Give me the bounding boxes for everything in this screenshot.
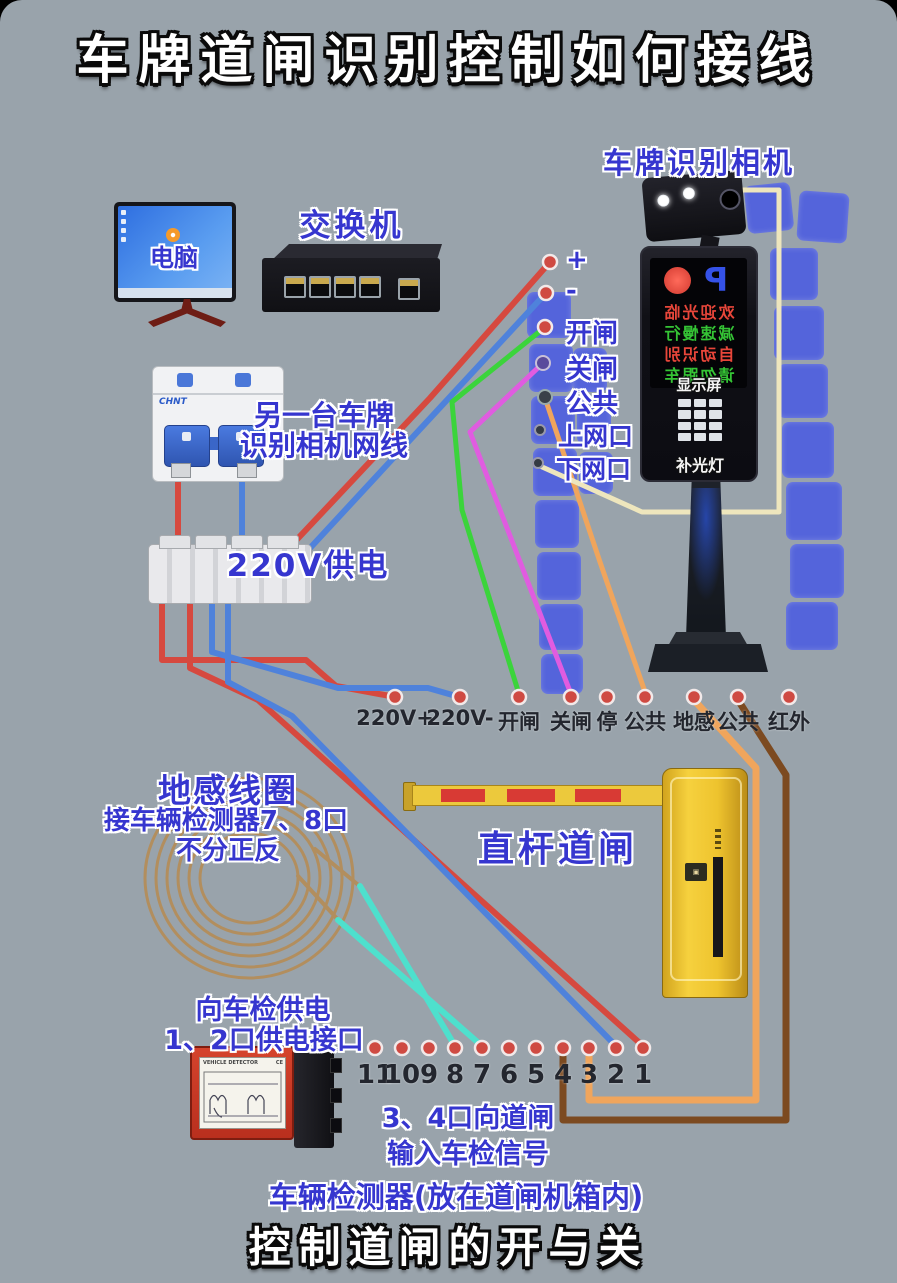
power-label: 220V供电 [227,540,390,585]
arm-red-segment [441,789,485,802]
terminal-dot-open [538,320,552,334]
gate-terminal-label: 红外 [768,706,810,736]
arm-red-segment [507,789,555,802]
detector-terminal-label: 7 [473,1060,491,1090]
detector-terminal-dot [582,1041,596,1055]
ethernet-port [309,276,331,298]
ethernet-port [359,276,381,298]
breaker-note-line2: 识别相机网线 [240,424,408,464]
terminal-dot-common [538,390,552,404]
gate-terminal-dot [453,690,467,704]
detector-terminal-label: 1 [634,1060,652,1090]
computer-label: 电脑 [150,238,198,273]
coil-note2: 不分正反 [176,830,280,867]
led-screen: P 欢迎光临 减速慢行 自动识别 请勿跟车 [650,258,747,388]
detector-terminal-label: 3 [580,1060,598,1090]
terminal-label-close: 关闸 [566,349,618,386]
gate-terminal-label: 公共 [717,706,759,736]
terminal-dot-minus [539,286,553,300]
desktop-icon [121,237,126,242]
detector-signal-note1: 3、4口向道闸 [382,1096,555,1135]
detector-terminal-dot [448,1041,462,1055]
wiring-layer [0,0,897,1283]
terminal-dot-close [536,356,550,370]
detector-terminal-dot [556,1041,570,1055]
detector-terminal-label: 2 [607,1060,625,1090]
breaker-brand: CHNT [159,397,187,407]
gate-terminal-label: 开闸 [498,706,540,736]
led-line: 自动识别 [650,344,747,365]
cabinet-stripe [713,857,723,957]
camera-label: 车牌识别相机 [603,140,795,182]
barrier-cabinet: ▣ [662,768,748,998]
led-red-circle [664,267,691,294]
detector-terminal-dot [368,1041,382,1055]
fill-light-panel [678,399,722,441]
terminal-label-common: 公共 [566,383,618,420]
wire-coil-port8 [360,886,455,1046]
connector-tab [330,1088,342,1103]
camera-light [657,194,670,207]
detector-terminal-label: 4 [554,1060,572,1090]
terminal-label-uplink: 上网口 [558,417,633,453]
gate-terminal-dot [564,690,578,704]
gate-terminal-dot [782,690,796,704]
terminal-label-downlink: 下网口 [556,450,631,486]
desktop-icon [121,228,126,233]
terminal-label-minus: - [566,276,577,306]
gate-terminal-dot [687,690,701,704]
gate-terminal-dot [600,690,614,704]
connector-tab [330,1058,342,1073]
terminal-dot-downlink [533,458,543,468]
gate-terminal-label: 公共 [624,706,666,736]
detector-power-note2: 1、2口供电接口 [164,1018,364,1057]
detector-caption: 车辆检测器(放在道闸机箱内) [269,1174,644,1216]
ethernet-port [334,276,356,298]
led-line: 减速慢行 [650,323,747,344]
wire-gate-220v-plus [162,598,390,696]
detector-terminal-label: 9 [420,1060,438,1090]
footer-caption: 控制道闸的开与关 [0,1214,897,1275]
led-line: 欢迎光临 [650,302,747,323]
gate-terminal-dot [638,690,652,704]
terminal-dot-uplink [535,425,545,435]
detector-terminal-label: 5 [527,1060,545,1090]
breaker-terminal [171,463,191,478]
gate-terminal-dot [731,690,745,704]
terminal-label-plus: + [566,245,588,275]
cabinet-text-marks [715,829,721,849]
pole-base [648,644,768,672]
ce-mark: CE [276,1060,283,1066]
detector-terminal-dot [609,1041,623,1055]
fill-light-label: 补光灯 [676,452,724,476]
gate-terminal-label: 220V+ [356,706,434,730]
vehicle-detector: VEHICLE DETECTOR CE [190,1046,294,1140]
detector-terminal-dot [502,1041,516,1055]
detector-faceplate: VEHICLE DETECTOR CE [199,1057,286,1129]
gate-terminal-dot [512,690,526,704]
camera-light [682,187,695,200]
gate-terminal-label: 停 [597,706,618,736]
switch-label: 交换机 [300,200,405,245]
wire-close-gate [470,364,571,694]
wiring-diagram: 车牌道闸识别控制如何接线 [0,0,897,1283]
page-title: 车牌道闸识别控制如何接线 [0,18,897,93]
breaker-toggle [164,425,210,467]
connector-tab [330,1118,342,1133]
detector-signal-note2: 输入车检信号 [387,1132,549,1171]
barrier-label: 直杆道闸 [478,820,638,872]
gate-terminal-label: 地感 [673,706,715,736]
arm-red-segment [575,789,621,802]
display-screen-label: 显示屏 [676,374,721,395]
detector-terminal-label: 8 [446,1060,464,1090]
detector-terminal-dot [475,1041,489,1055]
circuit-diagram [200,1070,285,1128]
desktop-icon [121,210,126,215]
terminal-dot-plus [543,255,557,269]
camera-lens [719,188,742,211]
breaker-marking [177,373,193,387]
gate-terminal-label: 关闸 [550,706,592,736]
detector-terminal-dot [636,1041,650,1055]
detector-terminal-dot [422,1041,436,1055]
breaker-marking [235,373,251,387]
gate-terminal-label: 220V- [426,706,493,730]
barrier-arm [412,785,668,806]
breaker-terminal [237,463,257,478]
terminal-bump [159,535,191,549]
detector-terminal-label: 6 [500,1060,518,1090]
pole-base [668,632,748,646]
led-p-sign: P [704,260,728,299]
cabinet-emblem: ▣ [685,863,707,881]
detector-terminal-label: 10 [384,1060,420,1090]
terminal-bump [195,535,227,549]
detector-terminal-dot [529,1041,543,1055]
detector-terminal-dot [395,1041,409,1055]
detector-title: VEHICLE DETECTOR [203,1060,258,1066]
terminal-label-open: 开闸 [566,313,618,350]
taskbar [118,288,232,298]
camera-pole [686,482,726,638]
pole-glow [686,488,726,608]
ethernet-port [284,276,306,298]
desktop-icon [121,219,126,224]
gate-terminal-dot [388,690,402,704]
ethernet-port [398,278,420,300]
detector-side-connector [294,1048,334,1148]
